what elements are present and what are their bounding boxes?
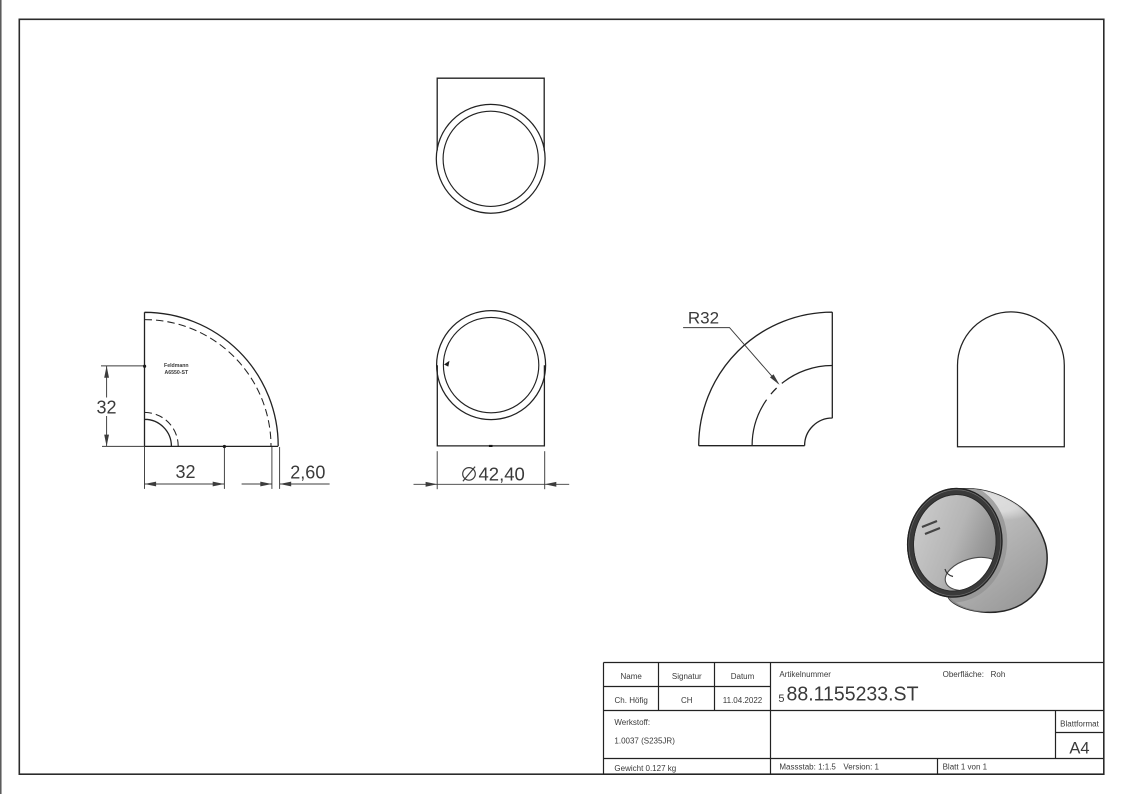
svg-text:1.0037 (S235JR): 1.0037 (S235JR): [614, 736, 675, 745]
svg-text:5: 5: [778, 693, 784, 705]
svg-text:Artikelnummer: Artikelnummer: [779, 670, 831, 679]
svg-text:Feldmann: Feldmann: [164, 363, 189, 369]
svg-text:Blatt 1 von 1: Blatt 1 von 1: [943, 763, 988, 772]
svg-text:Massstab: 1:1.5: Massstab: 1:1.5: [779, 763, 836, 772]
svg-text:88.1155233.ST: 88.1155233.ST: [787, 683, 919, 705]
svg-text:Oberfläche: Roh: Oberfläche: Roh: [943, 670, 1006, 679]
svg-text:42,40: 42,40: [479, 464, 525, 485]
svg-text:Datum: Datum: [731, 672, 755, 681]
svg-text:Blattformat: Blattformat: [1060, 720, 1099, 729]
svg-text:Signatur: Signatur: [672, 672, 702, 681]
svg-text:32: 32: [96, 397, 116, 417]
svg-text:32: 32: [175, 462, 195, 482]
svg-text:Gewicht 0.127 kg: Gewicht 0.127 kg: [614, 764, 676, 773]
svg-text:Ch. Höfig: Ch. Höfig: [615, 696, 648, 705]
svg-text:11.04.2022: 11.04.2022: [723, 696, 763, 705]
svg-text:Werkstoff:: Werkstoff:: [614, 718, 650, 727]
svg-text:A6550-ST: A6550-ST: [164, 370, 188, 376]
svg-text:Name: Name: [621, 672, 643, 681]
svg-text:2,60: 2,60: [290, 462, 325, 482]
svg-text:CH: CH: [681, 696, 693, 705]
svg-text:Version: 1: Version: 1: [843, 763, 879, 772]
svg-text:A4: A4: [1069, 740, 1089, 758]
svg-text:R32: R32: [688, 308, 719, 327]
